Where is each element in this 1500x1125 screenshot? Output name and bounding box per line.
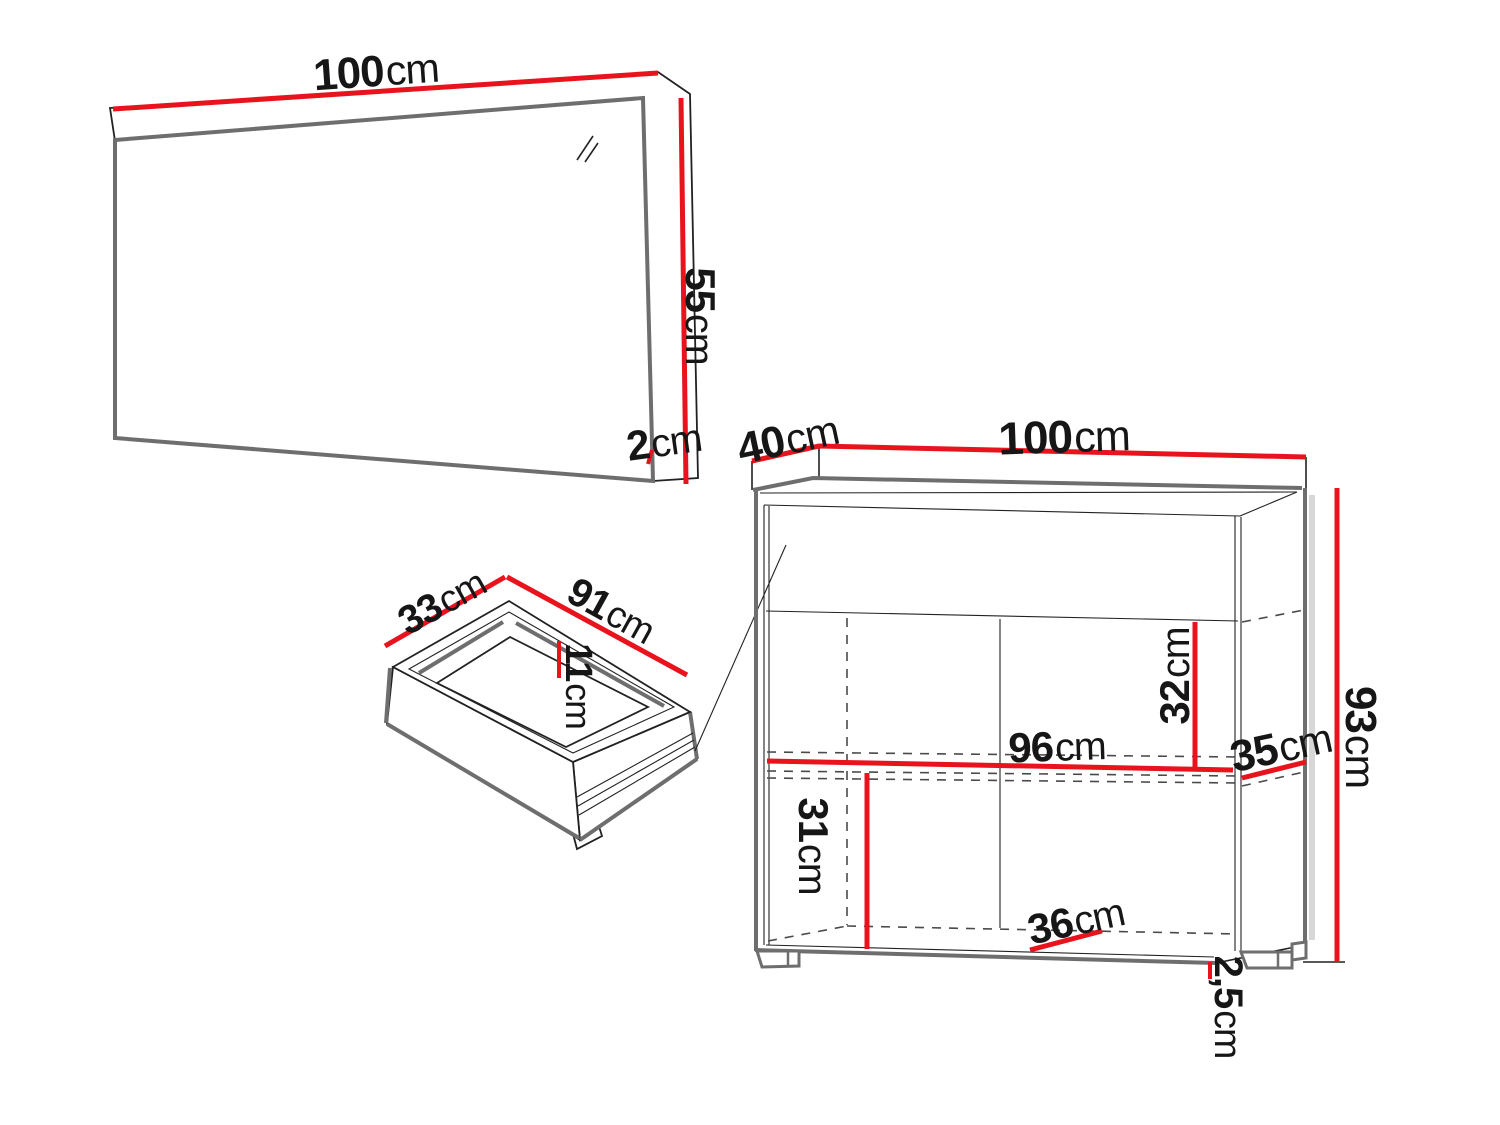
dim-label-cabinet-lower-inner-height: 31cm [792, 797, 834, 894]
dim-label-cabinet-inner-width: 96cm [1008, 724, 1107, 770]
dim-unit: cm [1073, 412, 1130, 462]
cabinet-hidden-shelf-top [767, 752, 1238, 757]
furniture-dimension-diagram: 100cm 55cm 2cm 33cm 91cm 11cm 40cm 100cm… [0, 0, 1500, 1125]
dim-value: 100 [312, 47, 386, 101]
dim-value: 2,5 [1206, 956, 1250, 1009]
dim-value: 40 [733, 416, 789, 474]
dim-unit: cm [384, 45, 440, 95]
dim-value: 32 [1151, 680, 1198, 725]
cabinet-top-face-back-line [760, 492, 1297, 493]
dim-value: 100 [997, 410, 1073, 465]
cabinet-front-top-edge [764, 505, 1240, 516]
dim-unit: cm [1337, 735, 1383, 788]
cabinet-hidden-side-top [1242, 610, 1304, 622]
cabinet-hidden-shelf-bottom-2 [767, 778, 1238, 783]
dim-value: 93 [1336, 686, 1385, 733]
cabinet-drawing [752, 446, 1345, 979]
dim-unit: cm [1054, 724, 1106, 770]
dim-value: 35 [1226, 724, 1282, 782]
dim-value: 11 [557, 643, 599, 681]
dim-unit: cm [790, 844, 834, 895]
dim-label-mirror-depth: 2cm [624, 416, 704, 469]
cabinet-bottom-edge [755, 950, 1216, 963]
cabinet-left-foot [757, 951, 799, 967]
dim-unit: cm [1154, 627, 1198, 678]
mirror-drawing [110, 72, 698, 484]
cabinet-hidden-floor-left [768, 926, 847, 941]
dim-unit: cm [648, 416, 704, 467]
dim-value: 31 [790, 797, 837, 842]
dim-label-drawer-height: 11cm [559, 643, 597, 729]
cabinet-top-right-corner-edge [1240, 492, 1297, 516]
dim-unit: cm [558, 683, 598, 729]
dim-unit: cm [677, 314, 721, 365]
dim-value: 36 [1023, 898, 1077, 953]
dim-label-mirror-width: 100cm [312, 46, 440, 99]
dim-unit: cm [1207, 1010, 1249, 1058]
dim-label-mirror-height: 55cm [679, 267, 721, 364]
diagram-linework [0, 0, 1500, 1125]
dim-label-cabinet-width: 100cm [998, 411, 1131, 463]
dim-label-cabinet-height: 93cm [1338, 686, 1382, 788]
cabinet-side-foot [1292, 942, 1306, 960]
drawer-leader-line [695, 545, 786, 751]
dim-value: 96 [1008, 723, 1054, 772]
cabinet-top-edge [753, 478, 1302, 490]
cabinet-drawer-separator-line [766, 611, 1238, 621]
dim-label-cabinet-upper-inner-height: 32cm [1154, 627, 1196, 724]
mirror-front-face [115, 98, 653, 481]
dim-label-cabinet-plinth-height: 2,5cm [1208, 956, 1248, 1059]
dim-value: 55 [677, 267, 724, 312]
cabinet-hidden-shelf-bottom-1 [767, 771, 1238, 776]
